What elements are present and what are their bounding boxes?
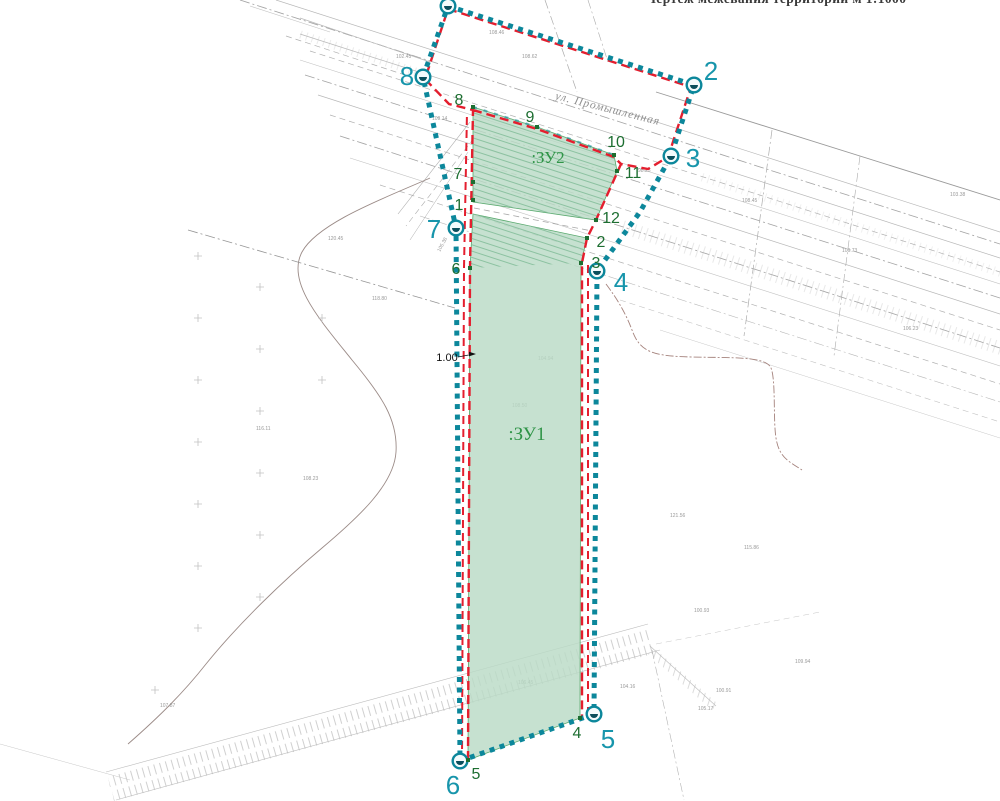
elevation-mark: 109.94 [795, 659, 811, 665]
grid-cross [151, 686, 159, 694]
parcel-zu1-top-hatch [470, 214, 587, 268]
elevation-mark: 105.17 [698, 706, 714, 712]
grid-cross [256, 469, 264, 477]
vertex-dot [471, 198, 475, 202]
road-stub-line [650, 646, 716, 706]
survey-point-number: 5 [601, 724, 615, 754]
elevation-mark: 116.11 [256, 426, 271, 432]
grid-crosses-layer [151, 252, 326, 694]
vertex-number: 7 [454, 166, 463, 183]
corridor-line [620, 300, 1000, 422]
vertex-dot [612, 153, 616, 157]
elevation-mark: 104.16 [620, 684, 636, 690]
vertex-number: 9 [526, 109, 535, 126]
bottom-road [0, 612, 820, 801]
corridor-line [660, 330, 1000, 438]
vertex-dot [471, 180, 475, 184]
grid-cross [194, 376, 202, 384]
corridor-line-short [286, 36, 402, 74]
corridor-line-short [250, 6, 330, 32]
elevation-mark: 106.23 [903, 326, 919, 332]
road-branch-line [656, 612, 820, 644]
survey-point-number: 6 [446, 770, 460, 800]
survey-point-number: 2 [704, 56, 718, 86]
grid-cross [256, 593, 264, 601]
vertex-number: 10 [607, 134, 625, 151]
vertex-dot [471, 105, 475, 109]
grid-cross [194, 500, 202, 508]
vertex-dot [468, 266, 472, 270]
survey-point-number: 7 [427, 214, 441, 244]
contour-line-right [606, 284, 802, 470]
vertex-number: 2 [597, 234, 606, 251]
elevation-mark: 108.62 [522, 54, 538, 60]
vertex-number: 8 [455, 92, 464, 109]
grid-cross [194, 438, 202, 446]
grid-cross [318, 314, 326, 322]
vertex-dot [578, 716, 582, 720]
elevation-mark: 107.87 [160, 703, 176, 709]
vertex-dot [585, 236, 589, 240]
elevation-mark: 102.45 [396, 54, 412, 60]
grid-cross [194, 624, 202, 632]
parcel-zu2-label: :ЗУ2 [531, 148, 564, 167]
tick-hatch-stub [648, 648, 718, 710]
vertex-number: 3 [592, 255, 601, 272]
elevation-mark: 109.14 [432, 116, 448, 122]
vertex-dot [466, 758, 470, 762]
elevation-mark: 100.93 [694, 608, 710, 614]
grid-cross [256, 283, 264, 291]
fence-line-left [188, 230, 455, 308]
grid-cross [318, 376, 326, 384]
vertex-number: 12 [602, 210, 620, 227]
vertex-dot [615, 169, 619, 173]
vertex-dot [594, 218, 598, 222]
elevation-mark: 106.73 [842, 248, 858, 254]
elevation-mark: 118.80 [372, 296, 387, 302]
corner-line [0, 744, 130, 780]
grid-cross [256, 345, 264, 353]
vertex-dot [579, 261, 583, 265]
elevation-mark: 120.45 [328, 236, 344, 242]
survey-point-number: 3 [686, 143, 700, 173]
parcel-zu1-label: :ЗУ1 [508, 424, 545, 445]
vertex-number: 5 [472, 766, 481, 783]
street-label: ул. Промышленная [553, 90, 661, 128]
grid-cross [194, 252, 202, 260]
corridor-line [318, 95, 1000, 314]
survey-point-number: 8 [400, 61, 414, 91]
vertex-number: 1 [455, 197, 464, 214]
grid-cross [194, 314, 202, 322]
elevation-mark: 121.56 [670, 513, 686, 519]
contour-line-left [128, 178, 430, 744]
elevation-mark: 108.46 [489, 30, 505, 36]
vertex-number: 6 [452, 261, 461, 278]
grid-cross [194, 562, 202, 570]
elevation-mark: 108.23 [303, 476, 319, 482]
survey-point-number: 4 [614, 267, 628, 297]
vertex-number: 4 [573, 725, 582, 742]
dimension-label: 1.00 [436, 352, 457, 364]
grid-cross [256, 531, 264, 539]
cadastral-map: 108.46108.62102.45109.1498.25103.38108.4… [0, 0, 1000, 801]
grid-cross [256, 407, 264, 415]
corridor-line-dark [656, 92, 1000, 200]
vertex-number: 11 [625, 165, 642, 182]
parcel-zu1-fill [468, 214, 587, 760]
vertex-dot [535, 125, 539, 129]
elevation-mark: 108.45 [742, 198, 758, 204]
elevation-mark: 103.38 [950, 192, 966, 198]
crossing-line [834, 156, 860, 356]
elevation-mark: 115.86 [744, 545, 759, 551]
elevation-mark: 100.91 [716, 688, 732, 694]
fan-line [406, 138, 474, 226]
